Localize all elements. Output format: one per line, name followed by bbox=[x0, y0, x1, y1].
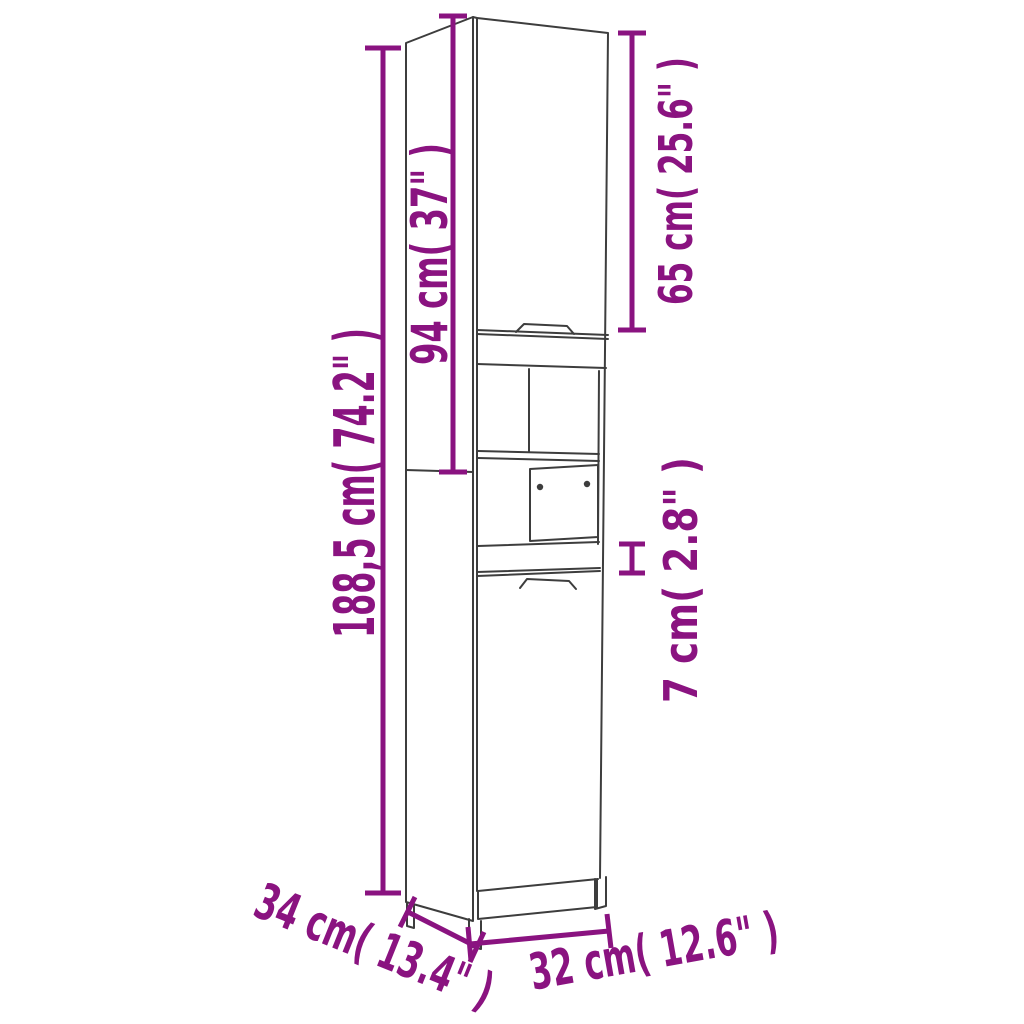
inset-middle-door bbox=[530, 465, 598, 541]
drawer-band-top-edge bbox=[478, 542, 599, 546]
dimension-total-height: 188,5 cm( 74.2" ) bbox=[323, 48, 401, 893]
cabinet-front-face-outline bbox=[473, 17, 608, 878]
dimension-top-door-height: 65 cm( 25.6" ) bbox=[618, 33, 703, 330]
dimension-label-upper-section: 94 cm( 37" ) bbox=[401, 143, 459, 365]
diagram-svg: 188,5 cm( 74.2" ) 94 cm( 37" ) 65 cm( 25… bbox=[0, 0, 1024, 1024]
dimension-drawer-front-height: 7 cm( 2.8" ) bbox=[619, 457, 708, 703]
dimension-upper-section-height: 94 cm( 37" ) bbox=[401, 16, 467, 472]
lower-door-bottom-edge bbox=[478, 879, 598, 891]
middle-shelf bbox=[478, 451, 599, 461]
lower-door-handle bbox=[520, 579, 576, 589]
dimension-line-drawer-front bbox=[619, 544, 645, 573]
drawer-band-bottom-edge bbox=[477, 568, 600, 576]
top-door-bottom-edge bbox=[477, 330, 608, 339]
dimension-label-total-height: 188,5 cm( 74.2" ) bbox=[323, 328, 388, 638]
dimension-label-top-door: 65 cm( 25.6" ) bbox=[649, 57, 703, 305]
dimension-diagram: 188,5 cm( 74.2" ) 94 cm( 37" ) 65 cm( 25… bbox=[0, 0, 1024, 1024]
door-pin-right bbox=[584, 481, 590, 487]
dimension-line-top-door bbox=[618, 33, 646, 330]
dimension-label-width: 32 cm( 12.6" ) bbox=[525, 901, 783, 1002]
upper-band-bottom-edge bbox=[477, 364, 606, 368]
door-pin-left bbox=[537, 484, 543, 490]
dimension-label-drawer-front: 7 cm( 2.8" ) bbox=[654, 457, 708, 703]
dimension-annotations: 188,5 cm( 74.2" ) 94 cm( 37" ) 65 cm( 25… bbox=[247, 16, 783, 1020]
